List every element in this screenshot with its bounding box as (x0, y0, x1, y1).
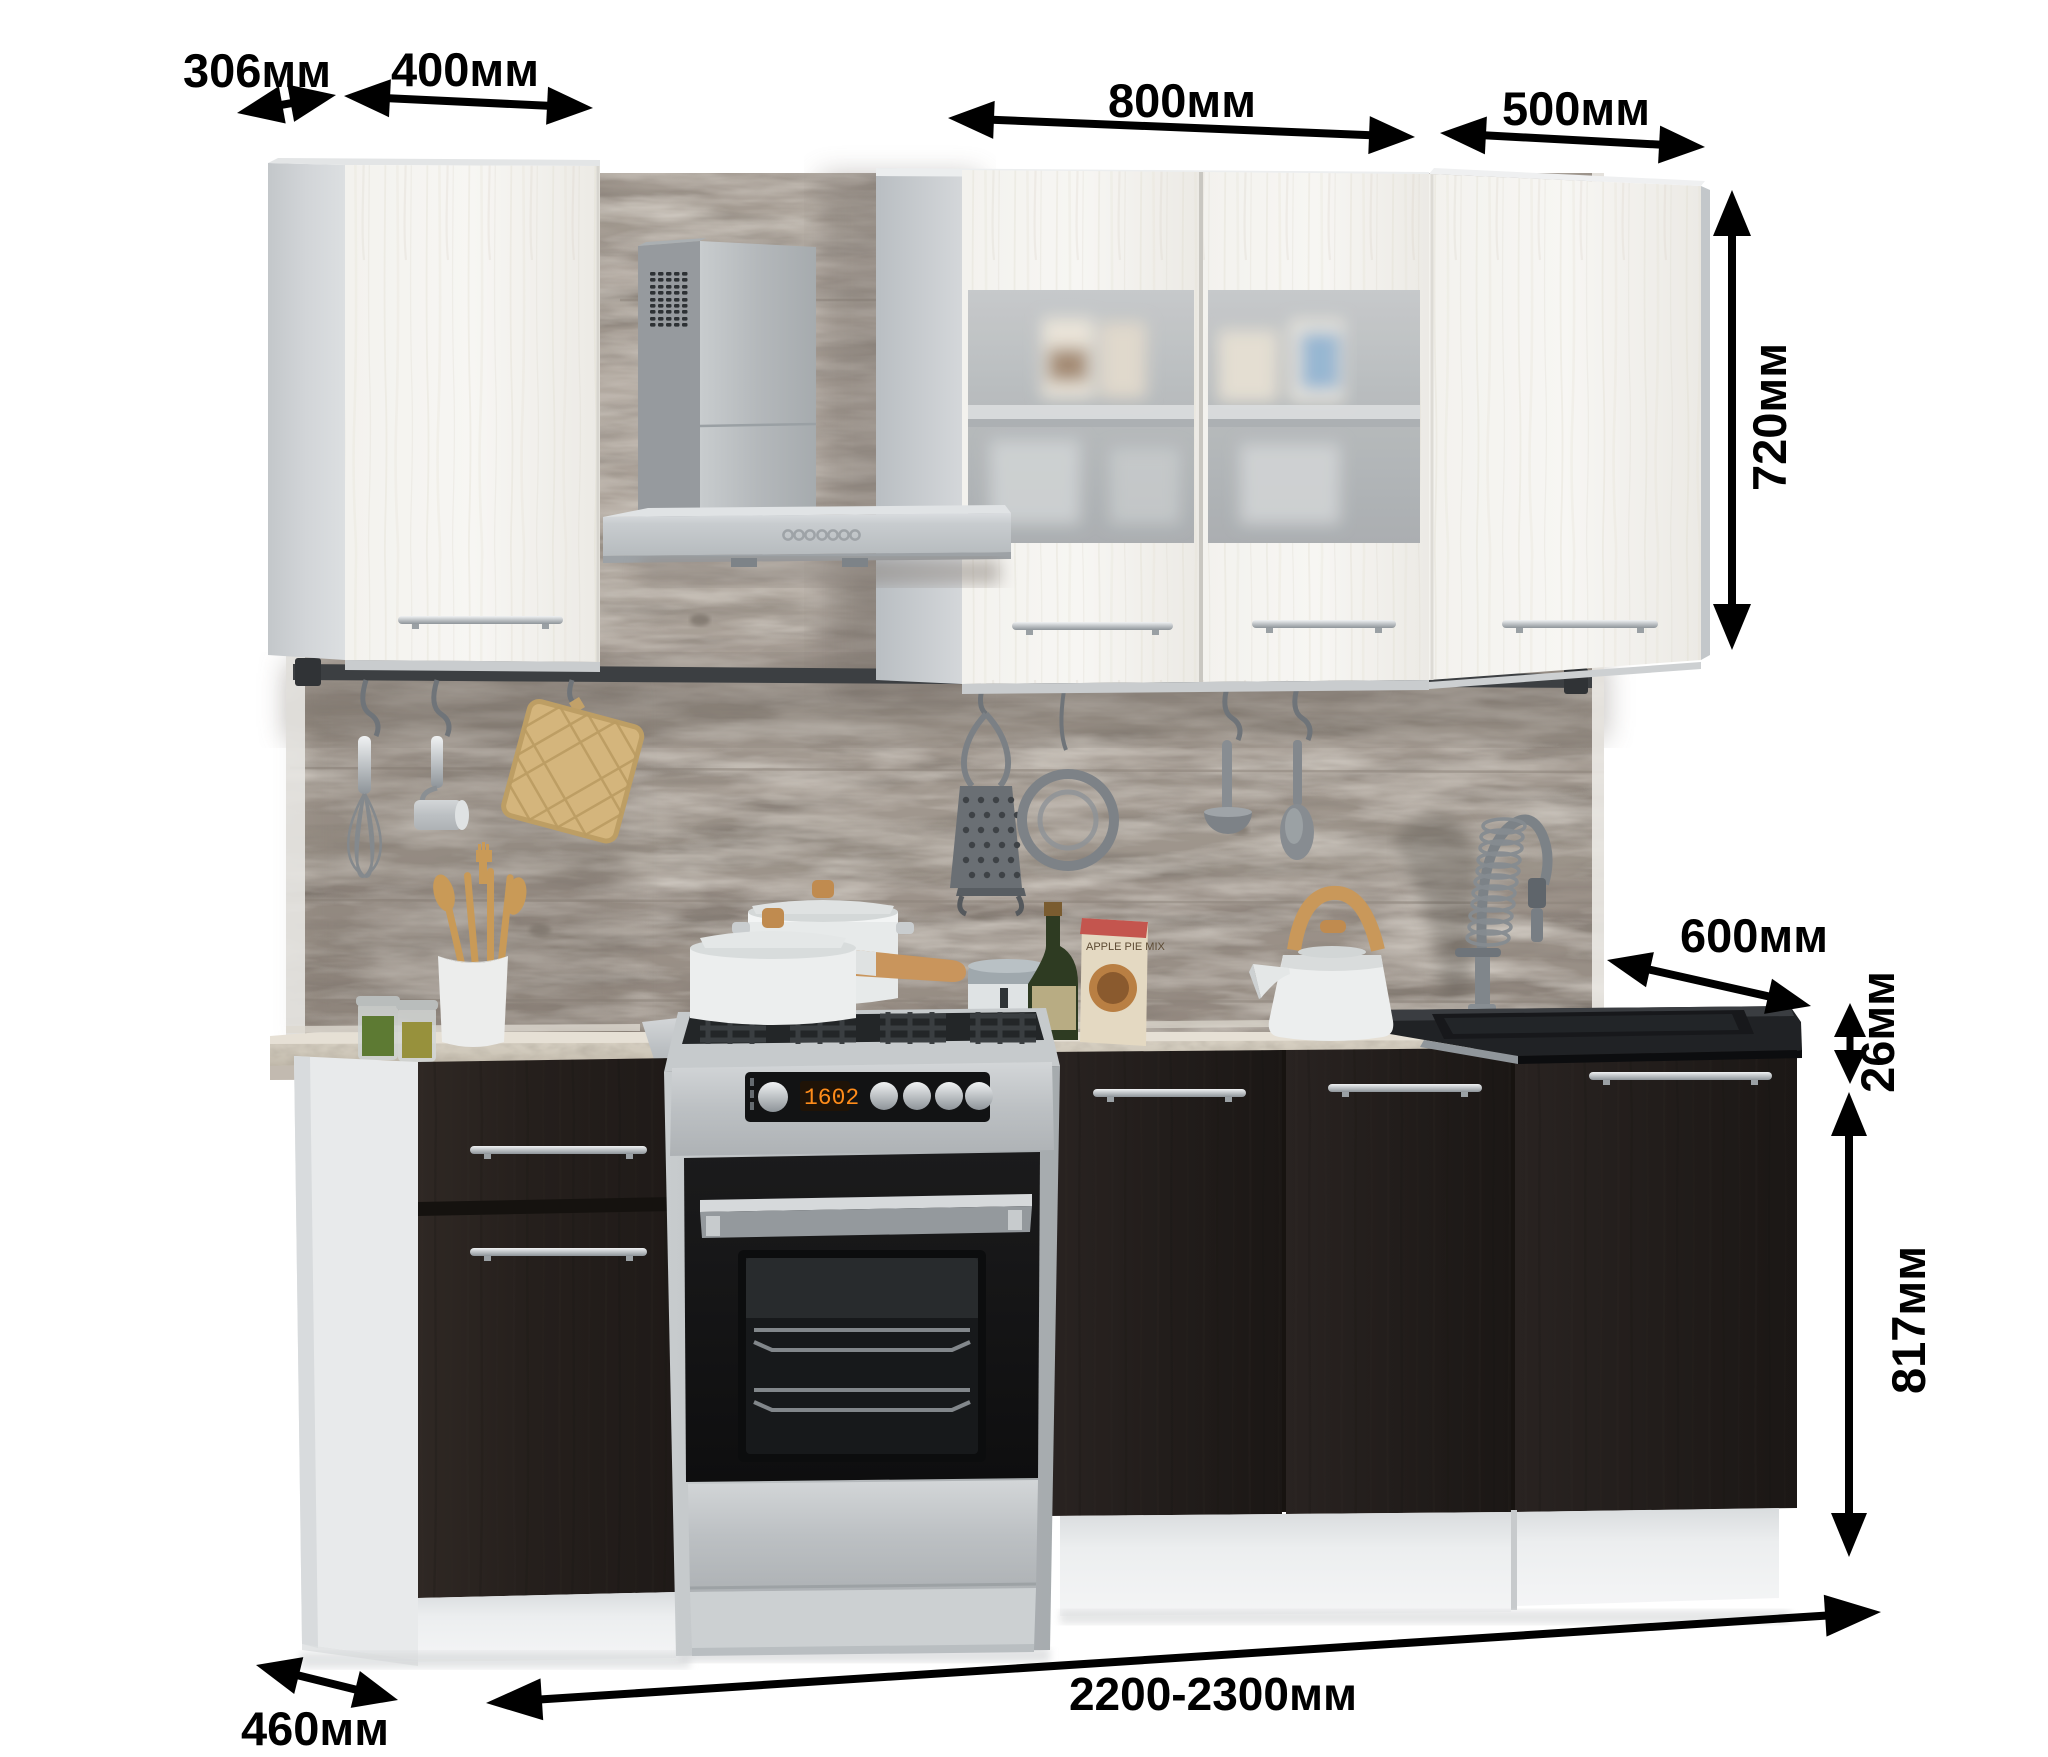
svg-text:800мм: 800мм (1108, 74, 1256, 127)
svg-text:1602: 1602 (804, 1085, 859, 1111)
svg-text:720мм: 720мм (1743, 343, 1796, 491)
svg-text:500мм: 500мм (1502, 82, 1650, 135)
svg-text:600мм: 600мм (1680, 909, 1828, 962)
svg-text:460мм: 460мм (241, 1702, 389, 1755)
svg-text:817мм: 817мм (1882, 1246, 1935, 1394)
svg-text:306мм: 306мм (183, 44, 331, 97)
svg-text:2200-2300мм: 2200-2300мм (1069, 1668, 1357, 1720)
svg-text:400мм: 400мм (391, 43, 539, 96)
svg-text:APPLE PIE MIX: APPLE PIE MIX (1086, 941, 1166, 953)
